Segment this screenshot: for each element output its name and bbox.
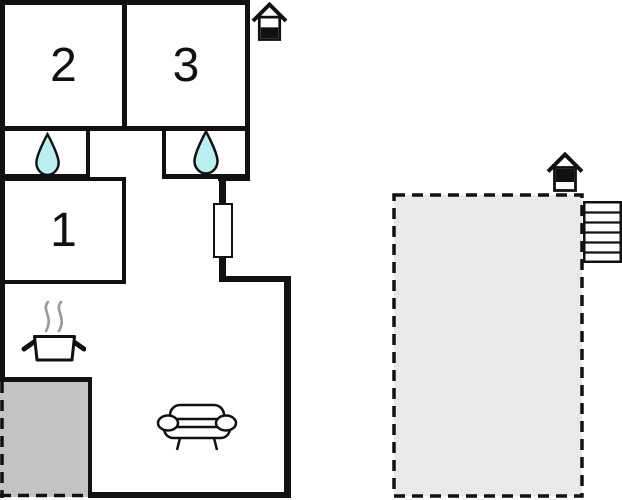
bedroom-2-label: 2 [5, 5, 122, 126]
window-door-right [213, 203, 233, 258]
wall-outer-right-lower [284, 276, 291, 497]
stove-pot-icon [20, 298, 86, 364]
stairs-icon [583, 201, 622, 263]
water-drop-icon [33, 132, 62, 177]
wall-above-window [219, 178, 226, 206]
wall-living-room-top-right [219, 276, 291, 282]
entrance-house-icon [546, 152, 584, 193]
bedroom-3-label: 3 [127, 5, 245, 126]
water-drop-icon [191, 129, 221, 176]
wall-bathroom-left-right [86, 126, 90, 178]
floor-plan: 2 3 1 [0, 0, 622, 500]
sofa-icon [156, 399, 238, 453]
wall-outer-bottom [88, 492, 291, 498]
terrace-right [392, 193, 584, 499]
bedroom-1-label: 1 [5, 181, 122, 280]
wall-bedroom1-right [122, 177, 126, 283]
wall-outer-right-upper [245, 0, 250, 180]
terrace-bottom-left [0, 382, 88, 498]
wall-bathroom-right-left [162, 126, 166, 178]
wall-bedroom1-bottom [0, 280, 126, 284]
entrance-house-icon [251, 2, 288, 42]
